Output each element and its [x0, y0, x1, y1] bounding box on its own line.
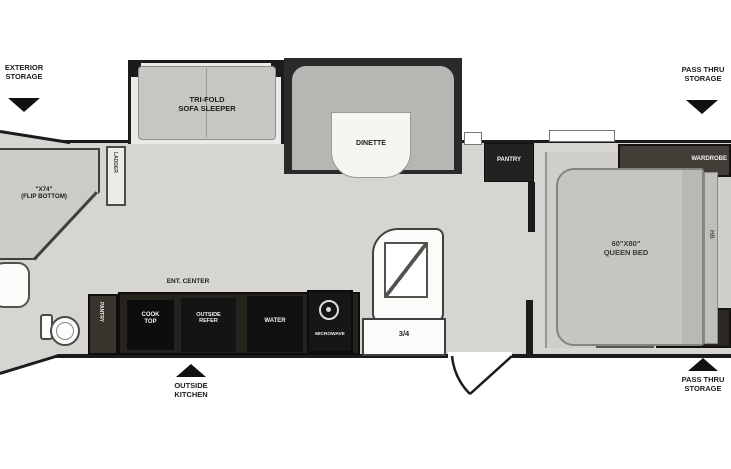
cook-top-label: COOK TOP: [127, 312, 174, 326]
cook-top-line1: COOK: [127, 312, 174, 319]
pantry-cabinet-left-label: PANTRY: [97, 302, 103, 322]
cook-top-line2: TOP: [127, 319, 174, 326]
ladder-label: LADDER: [111, 152, 117, 173]
outside-kitchen-annotation: OUTSIDE KITCHEN: [155, 382, 227, 399]
pass-thru-bottom-annotation: PASS THRU STORAGE: [668, 376, 731, 393]
sink-drain-icon: [326, 307, 331, 312]
outside-kitchen-line2: KITCHEN: [155, 391, 227, 400]
wardrobe-top-label: WARDROBE: [640, 156, 731, 163]
exterior-storage-annotation: EXTERIOR STORAGE: [0, 64, 60, 81]
sofa-label: TRI-FOLD SOFA SLEEPER: [138, 96, 276, 113]
window-mark-small: [464, 132, 482, 145]
pantry-label: PANTRY: [484, 157, 534, 164]
bunk-size-label: "X74": [0, 186, 88, 193]
bedroom-wall-upper: [528, 182, 535, 232]
outside-refer-line2: REFER: [181, 318, 236, 324]
exterior-storage-arrow-icon: [8, 98, 40, 112]
pass-thru-top-annotation: PASS THRU STORAGE: [668, 66, 731, 83]
bedroom-wall-lower: [526, 300, 533, 354]
ent-center-label: ENT. CENTER: [146, 278, 230, 285]
bed-name-label: QUEEN BED: [556, 249, 696, 258]
pass-thru-top-arrow-icon: [686, 100, 718, 114]
bunk-note-label: (FLIP BOTTOM): [0, 193, 88, 200]
headboard: [704, 172, 718, 344]
water-label: WATER: [247, 318, 303, 325]
pass-thru-bottom-arrow-icon: [688, 358, 718, 371]
dinette-label: DINETTE: [331, 140, 411, 148]
bathroom-sink: [0, 262, 30, 308]
outside-kitchen-arrow-icon: [176, 364, 206, 377]
outside-refer-label: OUTSIDE REFER: [181, 312, 236, 325]
entry-door-swing: [442, 354, 526, 400]
shower-pan: [384, 242, 428, 298]
floorplan-canvas: TRI-FOLD SOFA SLEEPER DINETTE PANTRY WAR…: [0, 0, 731, 469]
pass-thru-bottom-line2: STORAGE: [668, 385, 731, 394]
pass-thru-top-line2: STORAGE: [668, 75, 731, 84]
headboard-label: HB: [707, 230, 714, 239]
window-mark-wide: [549, 130, 615, 142]
toilet-bowl-inner: [56, 322, 74, 340]
bed-label: 60"X80" QUEEN BED: [556, 240, 696, 257]
microwave-label: MICROWAVE: [303, 332, 357, 338]
sofa-label-line2: SOFA SLEEPER: [138, 105, 276, 114]
bunk-label: "X74" (FLIP BOTTOM): [0, 186, 88, 200]
outside-refer: [181, 298, 236, 352]
exterior-storage-line2: STORAGE: [0, 73, 60, 82]
bath-label: 3/4: [362, 330, 446, 339]
